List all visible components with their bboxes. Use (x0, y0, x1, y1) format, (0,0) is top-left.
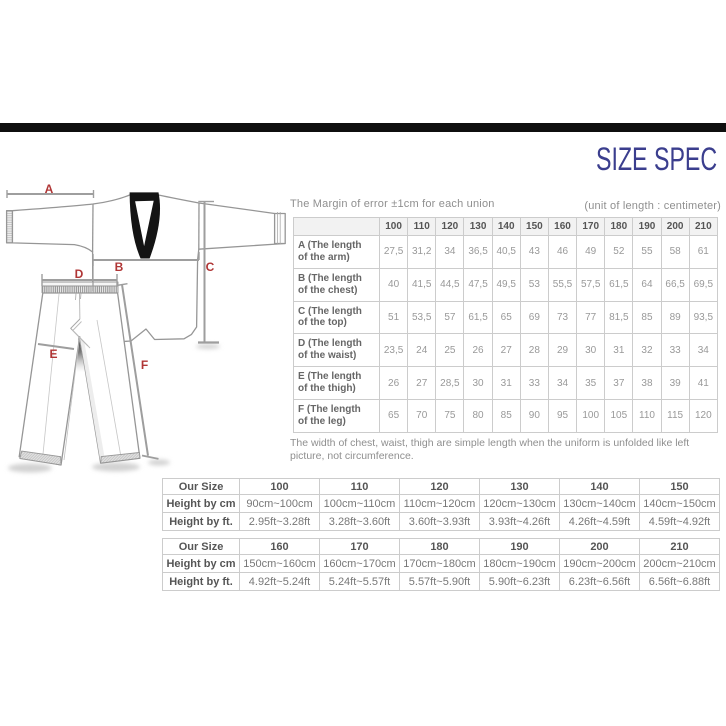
svg-text:E: E (49, 347, 57, 361)
svg-text:A: A (45, 182, 54, 196)
svg-text:F: F (141, 358, 148, 372)
svg-text:C: C (206, 260, 215, 274)
svg-text:D: D (75, 267, 84, 281)
svg-text:B: B (115, 260, 124, 274)
